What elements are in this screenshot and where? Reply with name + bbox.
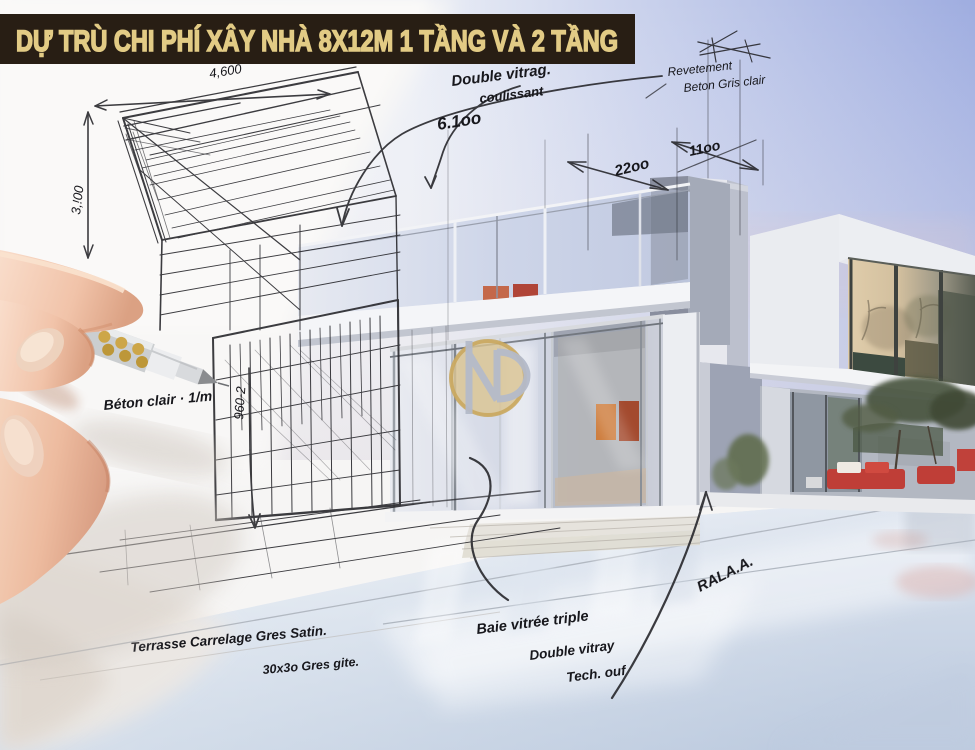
svg-text:DỰ TRÙ CHI PHÍ XÂY NHÀ 8X12M 1: DỰ TRÙ CHI PHÍ XÂY NHÀ 8X12M 1 TẦNG VÀ 2…: [16, 24, 618, 58]
svg-text:960-2: 960-2: [231, 385, 248, 420]
